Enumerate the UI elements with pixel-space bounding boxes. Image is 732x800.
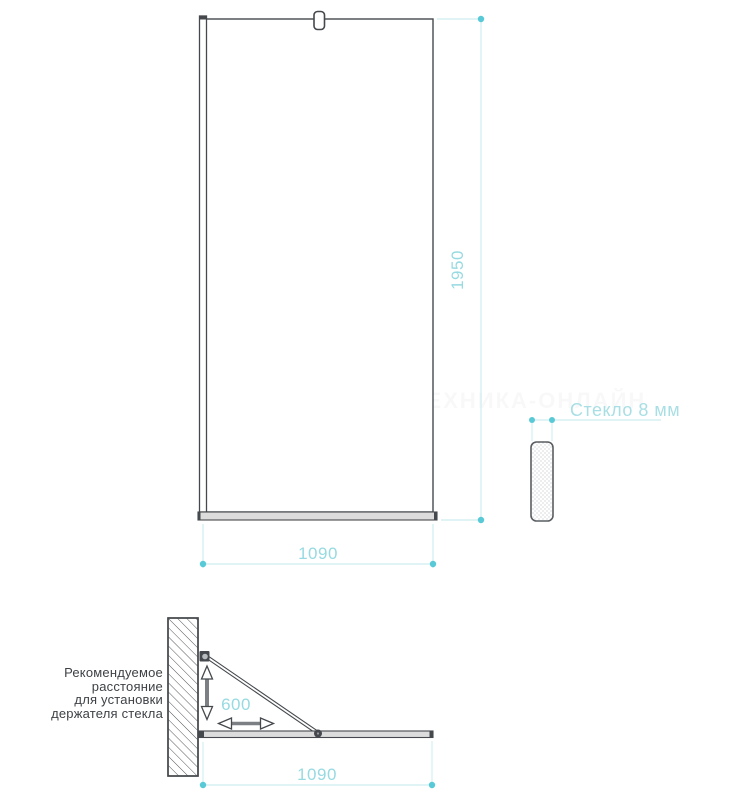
arrowhead-right: [261, 718, 274, 729]
top-clip: [314, 12, 325, 30]
height-dimension-label: 1950: [448, 250, 467, 290]
glass-cross-section: Стекло 8 мм: [529, 400, 680, 521]
wall-profile-top-cap: [200, 16, 207, 20]
note-line: Рекомендуемое: [0, 666, 163, 680]
dimension-dot: [429, 782, 435, 788]
holder-recommendation-note: Рекомендуемое расстояние для установки д…: [0, 666, 163, 720]
glass-thickness-label: Стекло 8 мм: [570, 400, 680, 420]
shower-screen-technical-drawing: САНТЕХНИКА-ОНЛАЙН 1950: [0, 0, 732, 800]
glass-section-profile: [531, 442, 553, 521]
width-dimension: 1090: [200, 524, 436, 568]
horizontal-double-arrow: [219, 718, 274, 729]
dimension-dot: [200, 782, 206, 788]
dimension-dot: [430, 561, 436, 567]
glass-plan-left-cap: [199, 731, 204, 738]
arrowhead-down: [202, 707, 213, 720]
bottom-profile-left-cap: [198, 512, 201, 520]
arrowhead-left: [219, 718, 232, 729]
vertical-double-arrow: [202, 666, 213, 720]
wall-bracket-screw: [202, 654, 208, 660]
wall-section-hatch: [168, 618, 198, 776]
note-line: держателя стекла: [0, 707, 163, 721]
dimension-dot: [478, 517, 484, 523]
width-dimension-label: 1090: [298, 544, 338, 563]
bottom-profile-bar: [198, 512, 437, 520]
dimension-dot: [478, 16, 484, 22]
holder-distance-label: 600: [221, 695, 251, 714]
note-line: расстояние: [0, 680, 163, 694]
plan-width-dimension-label: 1090: [297, 765, 337, 784]
glass-plan-right-cap: [430, 731, 434, 738]
top-view: 600 1090: [168, 618, 435, 788]
dimension-dot: [529, 417, 535, 423]
bottom-profile-right-cap: [434, 512, 437, 520]
note-line: для установки: [0, 693, 163, 707]
height-dimension: 1950: [437, 16, 484, 523]
dimension-dot: [200, 561, 206, 567]
plan-width-dimension: 1090: [200, 741, 435, 788]
dimension-dot: [549, 417, 555, 423]
front-view: 1950 1090: [198, 12, 484, 569]
rod-glass-fitting-center: [317, 732, 319, 734]
glass-panel-outline: [201, 19, 433, 512]
wall-profile: [200, 16, 207, 512]
arrowhead-up: [202, 666, 213, 679]
